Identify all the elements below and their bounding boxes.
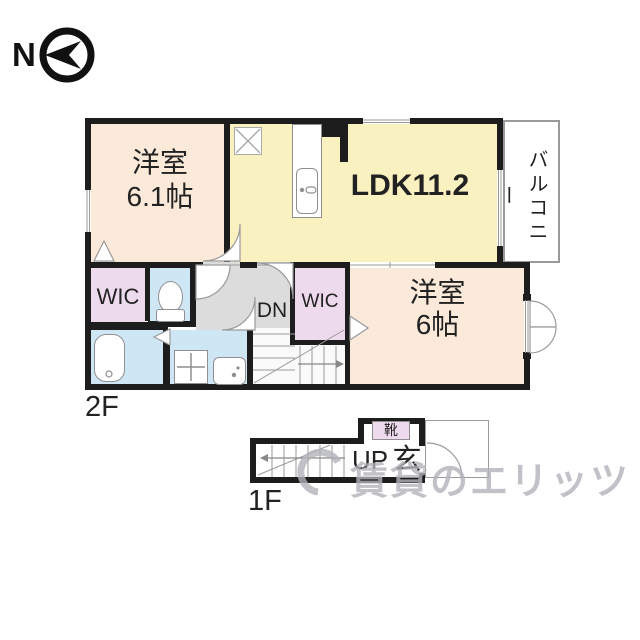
refrigerator-space — [234, 127, 262, 155]
bedroom-main-size: 6.1帖 — [100, 182, 220, 211]
f1-wall-top — [250, 438, 364, 444]
washing-machine-pan — [174, 350, 208, 384]
window-hinge-top — [523, 294, 531, 301]
bedroom-second-name: 洋室 — [375, 278, 500, 307]
floor-1f-label: 1F — [248, 486, 308, 516]
wall-mid-c — [293, 262, 350, 268]
bedroom-second-size: 6帖 — [375, 310, 500, 339]
f1-upper-wall-left — [358, 418, 364, 444]
bathtub — [94, 334, 125, 382]
wall-bath-wash — [163, 330, 170, 384]
window-right-wall — [524, 300, 530, 353]
stairs-1f-treads — [258, 445, 344, 477]
bedroom-main-name: 洋室 — [100, 148, 220, 177]
wall-bottom — [85, 384, 530, 390]
stairs-down-label: DN — [250, 300, 294, 322]
stairs-1f-arrow — [260, 454, 345, 462]
casement-window-wings — [530, 301, 556, 353]
wall-mid-a — [85, 262, 203, 268]
wall-toilet-hall — [190, 262, 196, 327]
floor-plan-image: N — [0, 0, 640, 640]
toilet-tank — [156, 309, 185, 322]
wall-bath-top — [85, 322, 168, 330]
north-arrow-icon — [43, 31, 91, 79]
wall-left — [85, 118, 91, 390]
wall-mid-d — [435, 262, 530, 268]
window-left-wall — [85, 190, 91, 232]
wall-wic-toilet — [145, 268, 150, 321]
window-top-wall — [363, 118, 410, 124]
kitchen-sink — [296, 168, 318, 214]
north-label: N — [12, 36, 36, 74]
wall-kitchen-nib-v — [340, 124, 348, 162]
balcony-label: バルコニー — [513, 138, 551, 256]
shoe-cabinet-label: 靴 — [372, 423, 410, 438]
wic-left-label: WIC — [91, 285, 145, 308]
floor-2f-label: 2F — [85, 392, 145, 422]
wic-center-label: WIC — [295, 292, 345, 312]
window-hinge-bottom — [523, 352, 531, 359]
wall-bedroom-ldk — [224, 124, 230, 262]
wall-wash-stairs — [247, 327, 253, 384]
f1-wall-right-upper — [419, 418, 425, 446]
ldk-label: LDK11.2 — [330, 170, 490, 202]
washbasin — [213, 357, 246, 385]
watermark-text: 賃貸のエリッツ — [350, 450, 630, 505]
wall-mid-b — [240, 262, 257, 268]
wall-bedroom2-left — [345, 262, 350, 384]
wall-wic-center-bottom — [290, 340, 350, 345]
